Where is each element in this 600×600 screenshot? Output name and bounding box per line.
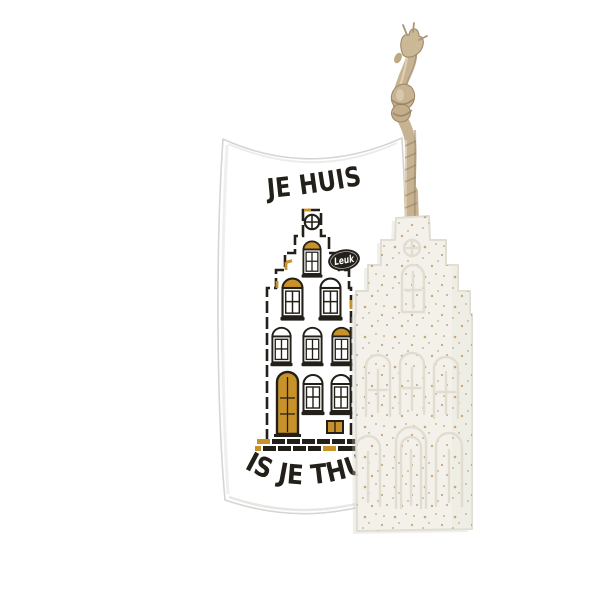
second-floor-window-left bbox=[280, 279, 304, 321]
first-floor-window-middle bbox=[301, 328, 323, 366]
product-photo: JE HUIS IS JE THUIS bbox=[0, 0, 600, 600]
front-door bbox=[274, 372, 301, 437]
scene-canvas: JE HUIS IS JE THUIS bbox=[0, 0, 600, 600]
first-floor-window-right bbox=[330, 328, 352, 366]
gable-window bbox=[302, 241, 323, 277]
second-floor-window-right bbox=[318, 279, 342, 321]
ground-floor-window-left bbox=[302, 375, 325, 415]
rope-knot bbox=[388, 81, 418, 124]
round-attic-window bbox=[305, 215, 319, 229]
first-floor-window-left bbox=[270, 328, 292, 366]
basement-window bbox=[327, 421, 343, 433]
ground-floor-window-right bbox=[330, 375, 353, 415]
